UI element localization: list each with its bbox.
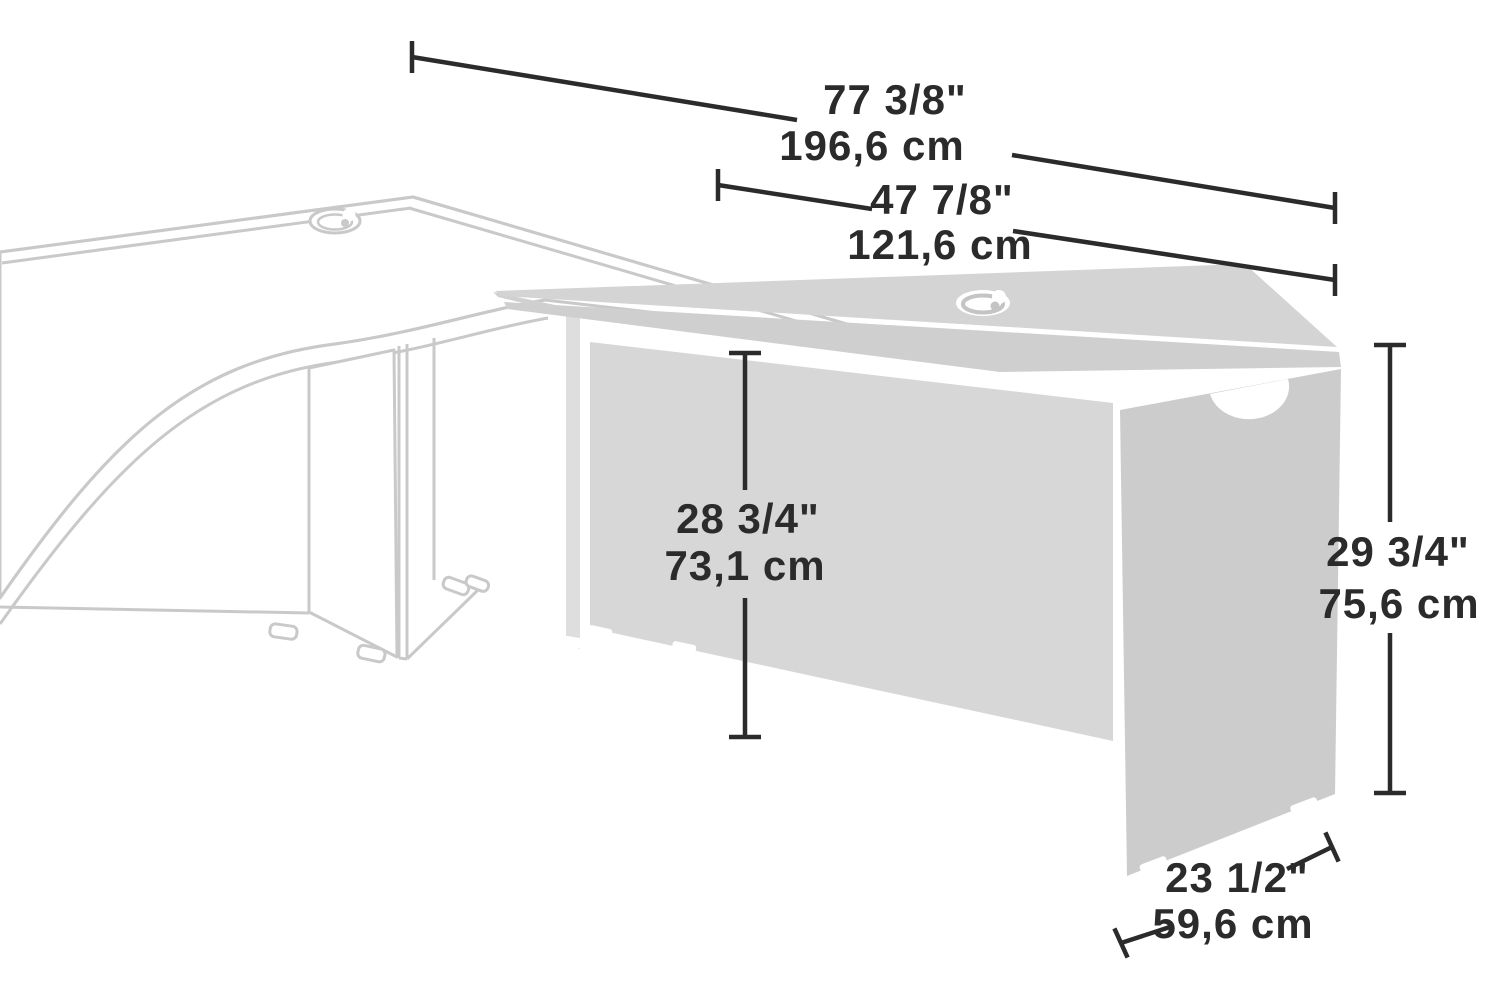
overall-width-inches-label: 77 3/8" <box>823 76 967 123</box>
overall-height-inches-label: 29 3/4" <box>1326 528 1470 575</box>
desk-floor-line <box>0 607 309 613</box>
dim-overall-height: 29 3/4" 75,6 cm <box>1318 345 1479 793</box>
overall-height-metric-label: 75,6 cm <box>1318 580 1479 627</box>
desk-dimension-diagram: 77 3/8" 196,6 cm 47 7/8" 121,6 cm 28 3/4… <box>0 0 1497 993</box>
return-grommet-hole <box>956 290 1010 316</box>
desk-grommet-hole <box>310 209 360 234</box>
underside-height-metric-label: 73,1 cm <box>664 542 825 589</box>
return-unit <box>493 264 1341 878</box>
dimension-diagram-page: 77 3/8" 196,6 cm 47 7/8" 121,6 cm 28 3/4… <box>0 0 1497 993</box>
underside-height-inches-label: 28 3/4" <box>676 495 820 542</box>
desk-modesty-panel <box>309 350 397 657</box>
desk-leg-panel <box>399 338 478 659</box>
return-left-side-panel <box>566 312 580 649</box>
return-width-metric-label: 121,6 cm <box>847 221 1032 268</box>
return-depth-inches-label: 23 1/2" <box>1165 854 1309 901</box>
overall-width-metric-label: 196,6 cm <box>779 122 964 169</box>
return-width-inches-label: 47 7/8" <box>870 176 1014 223</box>
return-depth-metric-label: 59,6 cm <box>1152 900 1313 947</box>
